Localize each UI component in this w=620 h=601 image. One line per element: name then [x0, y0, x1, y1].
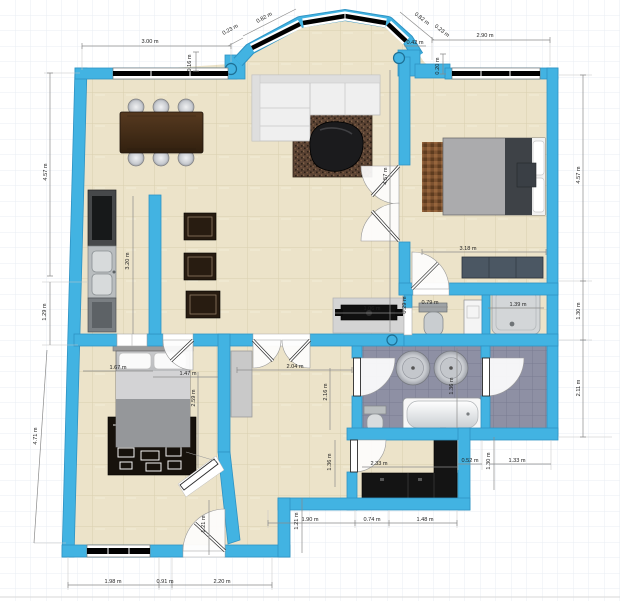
dimension-label: 2.04 m: [286, 364, 303, 370]
dimension-label: 0.42 m: [406, 40, 423, 46]
column[interactable]: [387, 335, 397, 345]
dimension-label: 2.20 m: [213, 579, 230, 585]
wall[interactable]: [147, 334, 163, 346]
coffee-table[interactable]: [310, 122, 363, 171]
dimension-label: 1.33 m: [508, 458, 525, 464]
dimension-label: 4.57 m: [576, 166, 582, 183]
dimension-label: 1.30 m: [576, 302, 582, 319]
dimension-label: 4.57 m: [383, 167, 389, 184]
dimension-label: 1.36 m: [327, 453, 333, 470]
wall[interactable]: [547, 68, 558, 437]
dimension-label: 4.57 m: [43, 163, 49, 180]
storage-cubes: [184, 213, 220, 318]
dimension-label: 1.29 m: [42, 303, 48, 320]
wall[interactable]: [481, 346, 490, 358]
wall[interactable]: [404, 334, 558, 346]
window[interactable]: [87, 545, 150, 557]
opening-bedroom2[interactable]: [117, 334, 147, 346]
dimension-label: 0.91 m: [156, 579, 173, 585]
wall[interactable]: [347, 428, 558, 440]
wall[interactable]: [278, 498, 290, 557]
dimension-label: 1.98 m: [104, 579, 121, 585]
wall[interactable]: [74, 334, 117, 346]
dimension-label: 1.39 m: [509, 302, 526, 308]
dimension-label: 0.74 m: [363, 517, 380, 523]
dimension-label: 0.16 m: [187, 54, 193, 71]
hall-wardrobe[interactable]: [231, 351, 252, 417]
dimension-label: 1.90 m: [301, 517, 318, 523]
dimension-label: 1.06 m: [363, 306, 380, 312]
dimension-label: 3.20 m: [125, 252, 131, 269]
dimension-label: 1.21 m: [294, 512, 300, 529]
dimension-label: 1.30 m: [486, 452, 492, 469]
dimension-label: 2.16 m: [323, 383, 329, 400]
bedside-rug[interactable]: [422, 142, 443, 212]
dimension-label: 2.59 m: [191, 389, 197, 406]
wall[interactable]: [399, 283, 413, 295]
floor-plan-canvas: 3.00 m 2.90 m 0.82 m 0.23 m 0.16 m 0.82 …: [0, 0, 620, 601]
dresser[interactable]: [462, 257, 543, 278]
dimension-label: 2.11 m: [576, 379, 582, 396]
washbasin[interactable]: [396, 351, 430, 385]
dimension-label: 0.29 m: [402, 296, 408, 313]
wall[interactable]: [218, 334, 230, 452]
window[interactable]: [113, 68, 228, 79]
bathtub[interactable]: [403, 398, 482, 431]
wall[interactable]: [399, 57, 410, 165]
dimension-label: 3.18 m: [459, 246, 476, 252]
dimension-label: 0.79 m: [421, 300, 438, 306]
dimension-label: 3.00 m: [141, 39, 158, 45]
window[interactable]: [452, 68, 540, 79]
dimension-label: 1.36 m: [449, 377, 455, 394]
dimension-label: 2.33 m: [370, 461, 387, 467]
dimension-label: 0.52 m: [461, 458, 478, 464]
dimension-label: 1.47 m: [179, 371, 196, 377]
wall[interactable]: [352, 346, 362, 358]
dimension-label: 1.48 m: [416, 517, 433, 523]
wall[interactable]: [449, 283, 558, 295]
dining-set[interactable]: [120, 99, 203, 166]
dimension-label: 1.67 m: [109, 365, 126, 371]
dimension-label: 4.71 m: [33, 427, 39, 444]
dimension-label: 0.20 m: [435, 57, 441, 74]
dimension-label: 1.21 m: [201, 515, 207, 532]
wall[interactable]: [278, 498, 470, 510]
kitchen-counters: [88, 190, 116, 332]
column[interactable]: [394, 53, 405, 64]
dining-table[interactable]: [120, 112, 203, 153]
double-bed[interactable]: [443, 138, 545, 215]
wall[interactable]: [149, 195, 161, 334]
dimension-label: 2.90 m: [476, 33, 493, 39]
